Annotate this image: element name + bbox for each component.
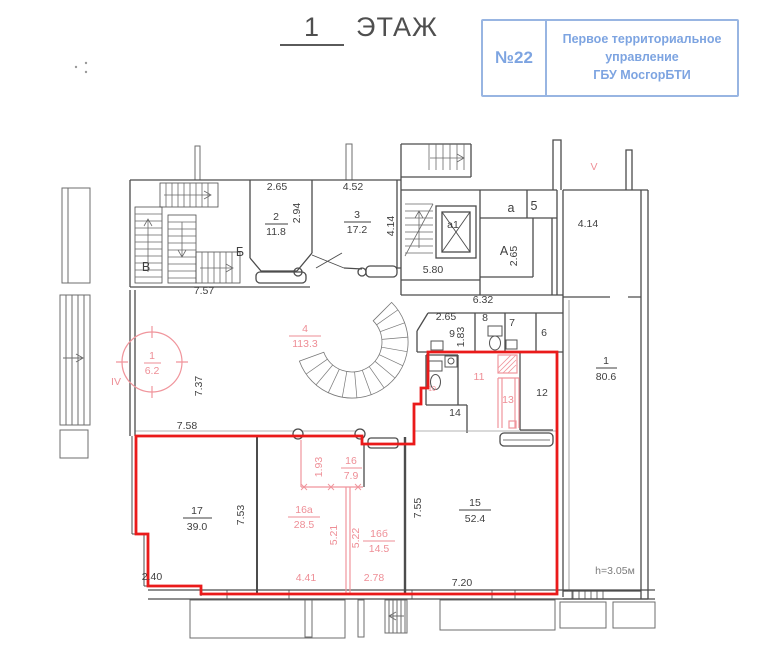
dim-265-room2: 2.65	[267, 181, 288, 193]
room16b-number: 16б	[370, 528, 388, 540]
room1-right-number: 1	[603, 355, 609, 367]
stair-label-v: В	[142, 260, 150, 274]
dim-294: 2.94	[291, 203, 303, 224]
room1-right-area: 80.6	[596, 371, 617, 383]
radiator-room15	[500, 433, 553, 446]
dim-757: 7.57	[194, 285, 215, 297]
section-iv-label: IV	[111, 376, 121, 388]
floor-plan-drawing: 2.65 2 11.8 2.94 4.52 3 17.2 4.14 Б В 7.…	[0, 0, 758, 661]
dim-758: 7.58	[177, 420, 198, 432]
toilet-room8	[490, 336, 501, 350]
ceiling-height-note: h=3.05м	[595, 565, 635, 577]
room13-number: 13	[502, 394, 514, 406]
scan-artifact-dots	[75, 62, 87, 73]
dim-414-room3: 4.14	[385, 216, 397, 237]
room-a-label: а	[508, 201, 515, 215]
room17-area: 39.0	[187, 521, 208, 533]
room16a-area: 28.5	[294, 519, 315, 531]
dim-753: 7.53	[235, 505, 247, 526]
dim-240: 2.40	[142, 571, 163, 583]
dim-632: 6.32	[473, 294, 494, 306]
radiator-room2	[256, 272, 306, 283]
dim-452: 4.52	[343, 181, 364, 193]
dim-737: 7.37	[193, 376, 205, 397]
dim-580: 5.80	[423, 264, 444, 276]
dim-265-stair-a: 2.65	[508, 246, 520, 267]
chimney-2	[346, 144, 352, 180]
room16a-number: 16а	[295, 504, 313, 516]
room16b-area: 14.5	[369, 543, 390, 555]
room16-area: 7.9	[344, 470, 359, 482]
room1-circle-number: 1	[149, 350, 155, 362]
fixture-room7	[506, 340, 517, 349]
dim-521: 5.21	[328, 525, 340, 546]
room15-area: 52.4	[465, 513, 486, 525]
room4-number: 4	[302, 323, 308, 335]
exterior-stair-left	[60, 295, 90, 425]
porch-bottom-right2	[613, 602, 655, 628]
room10-number: 10	[428, 386, 436, 393]
room2-number: 2	[273, 211, 279, 223]
column	[293, 429, 303, 439]
room3-number: 3	[354, 209, 360, 221]
toilet-tank-room8	[488, 326, 502, 336]
room-5-label: 5	[531, 199, 538, 213]
room2-area: 11.8	[266, 226, 286, 238]
room12-number: 12	[536, 387, 548, 399]
column	[358, 268, 366, 276]
toilet-tank-room10	[429, 361, 442, 371]
room11-number: 11	[474, 371, 485, 383]
stair-label-b: Б	[236, 245, 244, 259]
fixture-room9	[431, 341, 443, 350]
room3-area: 17.2	[347, 224, 368, 236]
dim-755: 7.55	[412, 498, 424, 519]
dim-720: 7.20	[452, 577, 473, 589]
floorplan-document: 1ЭТАЖ №22 Первое территориальное управле…	[0, 0, 758, 661]
section-v-label: V	[590, 161, 597, 173]
porch-bottom-left	[190, 600, 345, 638]
radiator-room3	[366, 266, 397, 277]
porch-bottom-center	[440, 600, 555, 630]
dim-265-room9: 2.65	[436, 311, 457, 323]
dim-414-section-v: 4.14	[578, 218, 599, 230]
dim-441: 4.41	[296, 572, 317, 584]
room15-number: 15	[469, 497, 481, 509]
room17-number: 17	[191, 505, 203, 517]
dim-522: 5.22	[350, 528, 362, 549]
chimney-1	[195, 146, 200, 180]
elevator-label-a1: а1	[447, 219, 459, 231]
dim-183: 1.83	[455, 327, 467, 348]
stairs-layer	[135, 144, 464, 398]
balcony-left	[62, 188, 90, 283]
room16-number: 16	[345, 455, 357, 467]
porch-bottom-right1	[560, 602, 606, 628]
column	[355, 429, 365, 439]
room8-number: 8	[482, 312, 488, 324]
dim-278: 2.78	[364, 572, 385, 584]
room14-number: 14	[449, 407, 461, 419]
room6-number: 6	[541, 327, 547, 339]
dim-193: 1.93	[313, 457, 325, 478]
column-circle-room1	[122, 332, 182, 392]
room7-number: 7	[509, 317, 515, 329]
room4-area: 113.3	[292, 338, 318, 350]
room1-circle-area: 6.2	[145, 365, 160, 377]
walls-layer	[130, 140, 655, 599]
